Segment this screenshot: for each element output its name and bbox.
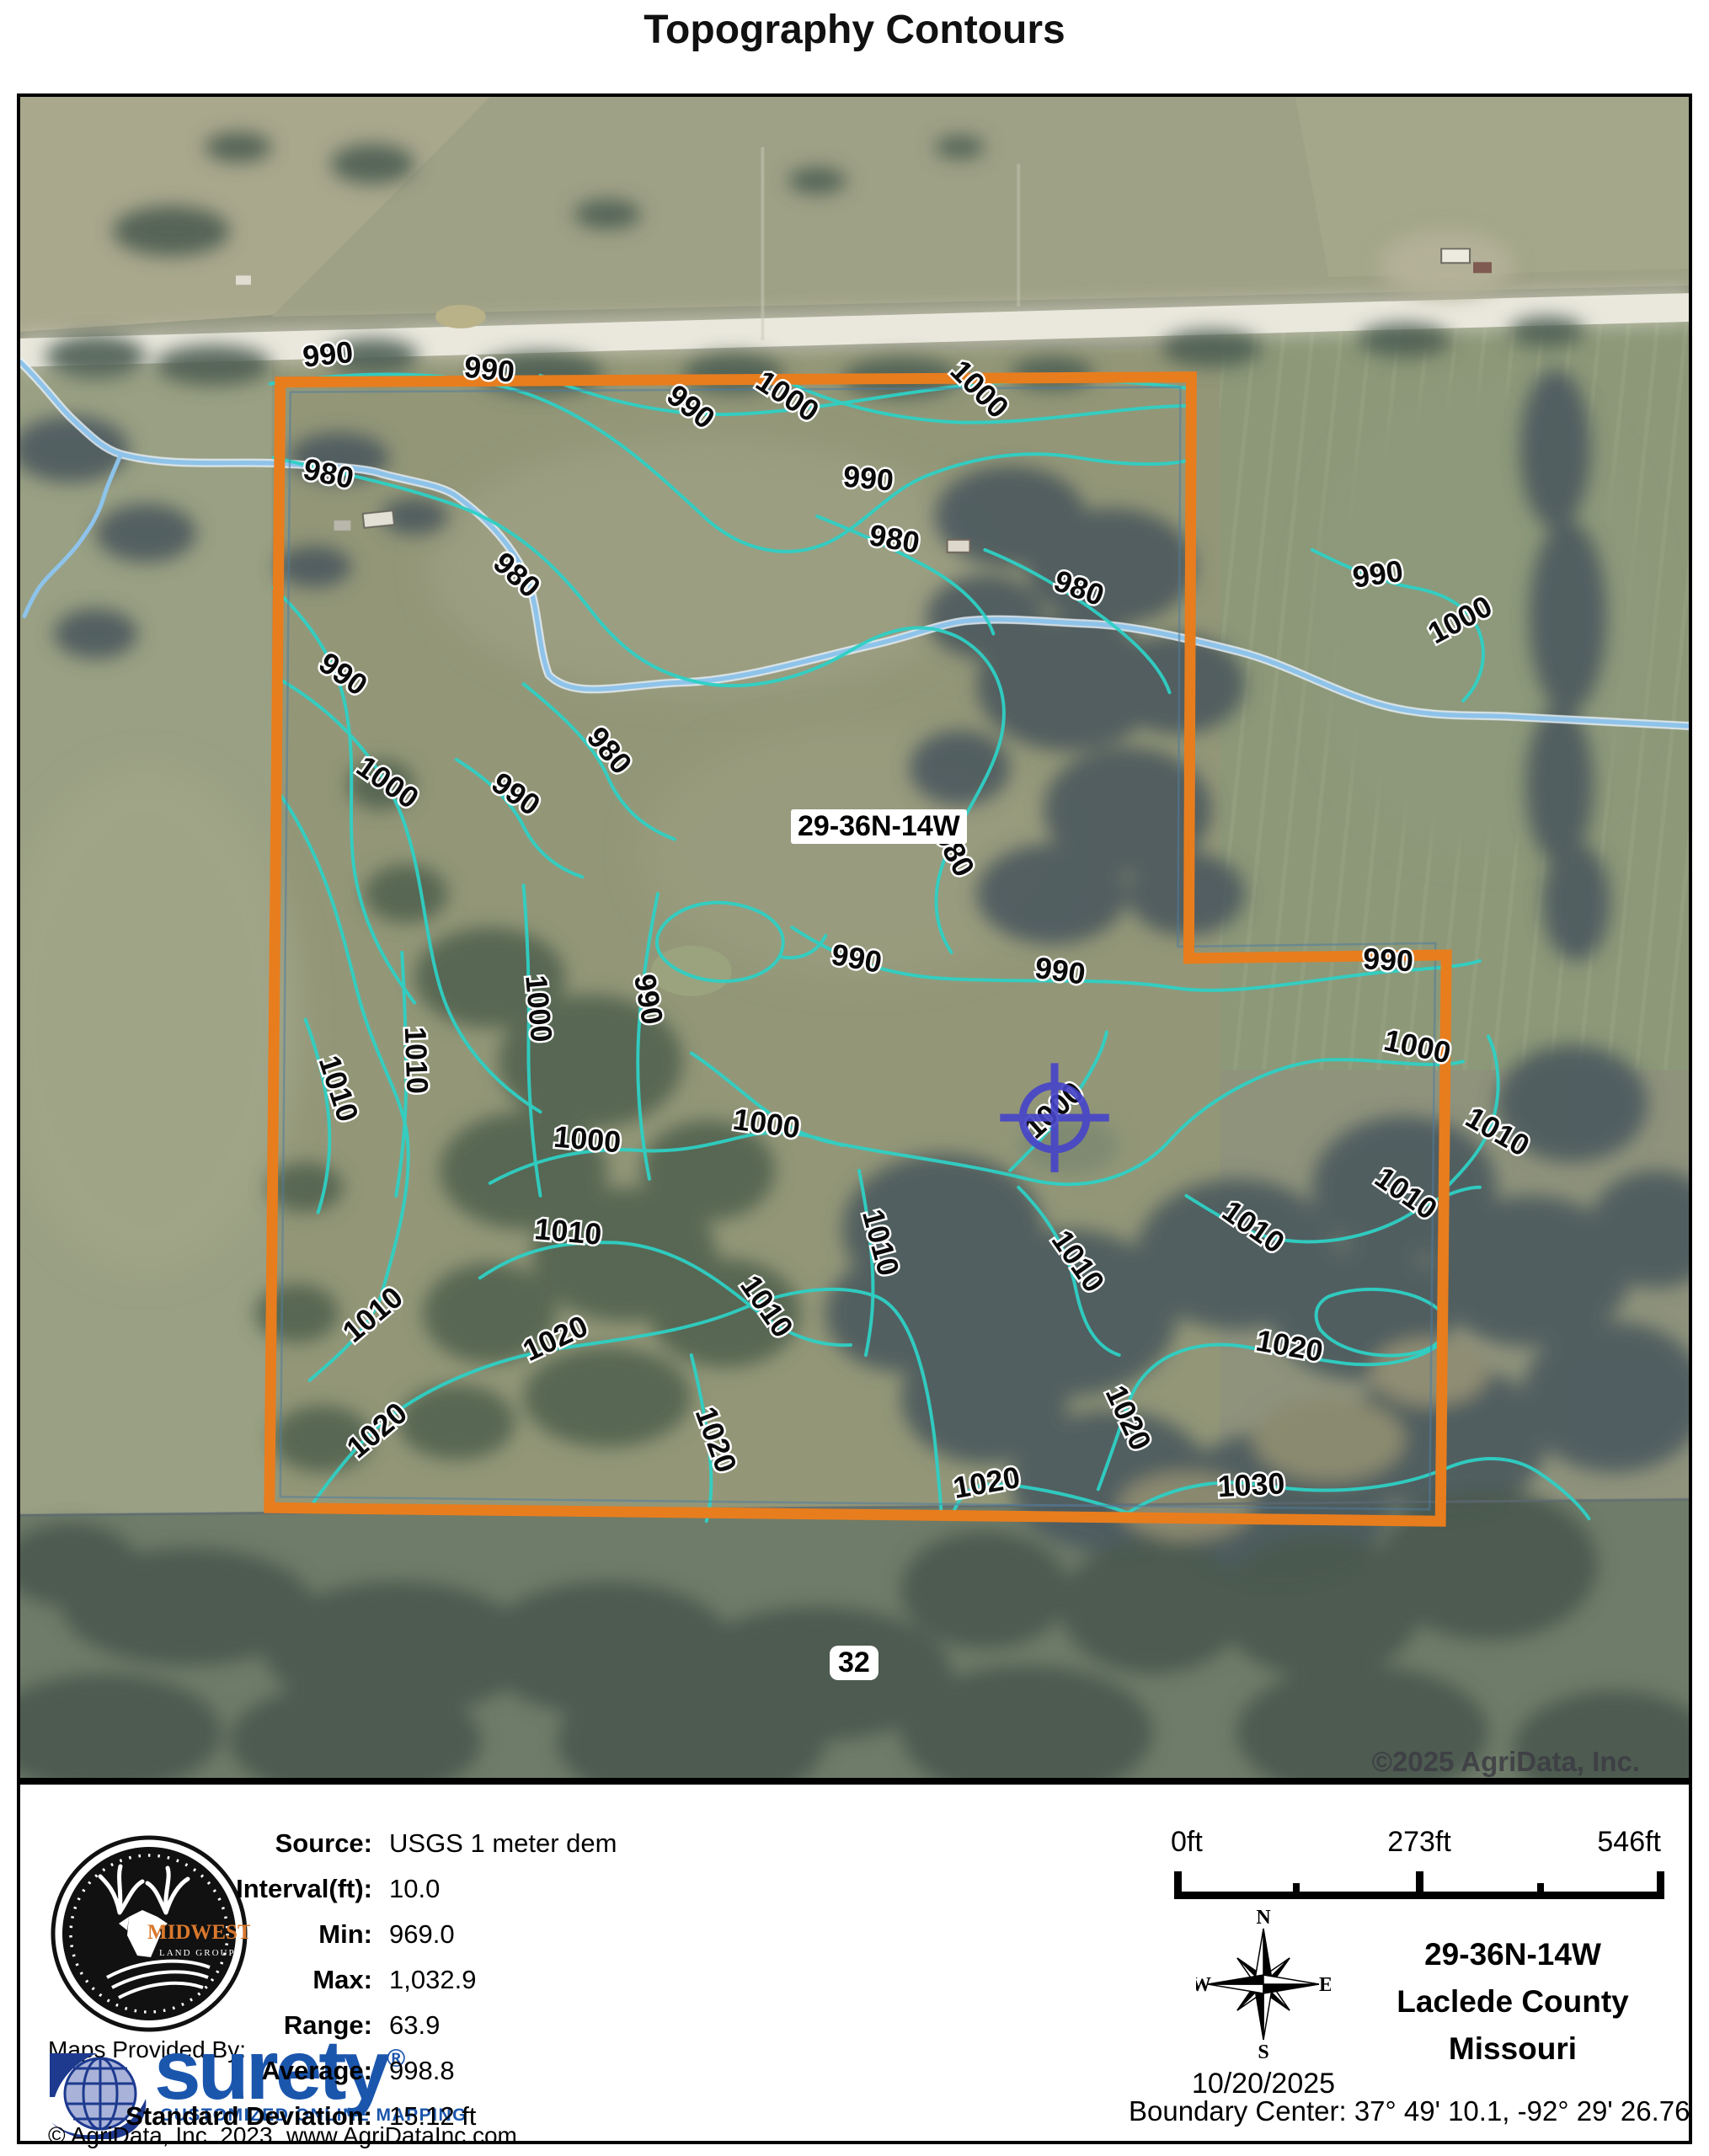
compass-n: N bbox=[1256, 1910, 1271, 1929]
map-copyright: ©2025 AgriData, Inc. bbox=[1372, 1746, 1640, 1778]
scale-end: 546ft bbox=[1597, 1826, 1661, 1859]
map-viewport[interactable]: 9909909901000100098099098098098099010009… bbox=[17, 93, 1692, 1781]
stat-label: Standard Deviation: bbox=[126, 2101, 372, 2132]
stat-label: Interval(ft): bbox=[236, 1874, 372, 1904]
contour-elevation-label: 1000 bbox=[519, 974, 558, 1043]
contour-elevation-label: 1000 bbox=[553, 1120, 622, 1160]
compass-w: W bbox=[1196, 1974, 1211, 1996]
boundary-center-coordinates: Boundary Center: 37° 49' 10.1, -92° 29' … bbox=[1129, 2095, 1685, 2127]
stat-value: 969.0 bbox=[389, 1919, 455, 1950]
page: { "title": "Topography Contours", "map":… bbox=[0, 0, 1709, 2156]
contour-elevation-label: 990 bbox=[1350, 554, 1405, 595]
contour-elevation-label: 990 bbox=[841, 460, 895, 498]
scale-bar-graphic bbox=[1174, 1868, 1668, 1902]
contour-elevation-label: 990 bbox=[301, 335, 355, 374]
stat-label: Source: bbox=[275, 1828, 372, 1859]
contour-elevation-label: 1030 bbox=[1217, 1466, 1286, 1503]
contour-elevation-label: 990 bbox=[1362, 942, 1414, 978]
compass-e: E bbox=[1319, 1974, 1331, 1996]
contour-elevation-label: 990 bbox=[1033, 951, 1087, 991]
location-township: 29-36N-14W bbox=[1336, 1937, 1690, 1972]
stat-value: 10.0 bbox=[389, 1874, 440, 1904]
stat-value: 15.12 ft bbox=[389, 2101, 476, 2132]
stat-value: 1,032.9 bbox=[389, 1965, 476, 1995]
section-number-label: 32 bbox=[830, 1646, 879, 1680]
section-township-label: 29-36N-14W bbox=[791, 809, 967, 844]
scale-0: 0ft bbox=[1171, 1826, 1203, 1859]
scale-mid: 273ft bbox=[1387, 1826, 1451, 1859]
location-state: Missouri bbox=[1336, 2031, 1690, 2067]
stat-value: 63.9 bbox=[389, 2010, 440, 2041]
stat-label: Min: bbox=[318, 1919, 372, 1950]
contour-elevation-label: 1010 bbox=[398, 1026, 435, 1094]
stat-label: Average: bbox=[261, 2056, 372, 2086]
page-title: Topography Contours bbox=[0, 7, 1709, 53]
stat-label: Max: bbox=[312, 1965, 372, 1995]
contour-elevation-label: 1010 bbox=[533, 1212, 603, 1251]
map-canvas[interactable]: 9909909901000100098099098098098099010009… bbox=[20, 97, 1689, 1778]
location-county: Laclede County bbox=[1336, 1984, 1690, 2020]
contour-elevation-label: 990 bbox=[462, 350, 516, 389]
stat-value: 998.8 bbox=[389, 2056, 455, 2086]
stat-value: USGS 1 meter dem bbox=[389, 1828, 617, 1859]
stat-label: Range: bbox=[284, 2010, 372, 2041]
compass-s: S bbox=[1258, 2041, 1268, 2062]
compass-rose-icon: N S W E bbox=[1196, 1910, 1331, 2062]
